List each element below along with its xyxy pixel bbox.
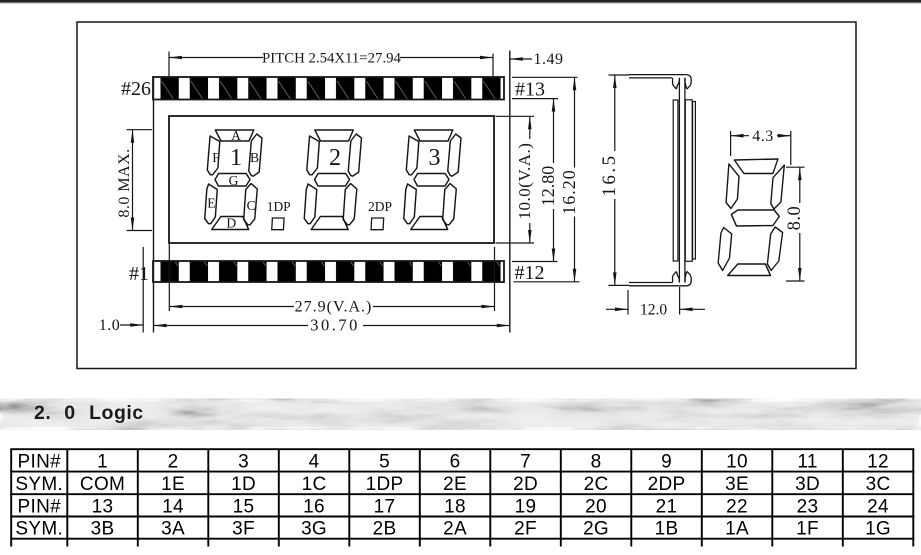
svg-text:16.20: 16.20 (559, 169, 579, 215)
svg-text:3B: 3B (91, 519, 115, 540)
svg-text:1C: 1C (302, 474, 327, 495)
svg-text:13: 13 (92, 496, 114, 517)
svg-text:4: 4 (309, 451, 320, 472)
svg-text:1D: 1D (231, 474, 256, 495)
svg-text:1E: 1E (161, 474, 185, 495)
svg-text:6: 6 (450, 451, 461, 472)
svg-text:A: A (231, 128, 241, 143)
svg-text:16: 16 (303, 496, 325, 517)
svg-text:3D: 3D (795, 474, 820, 495)
svg-text:3G: 3G (301, 519, 327, 540)
svg-text:3A: 3A (161, 519, 185, 540)
svg-text:G: G (229, 173, 239, 188)
svg-text:7: 7 (520, 451, 531, 472)
svg-text:1F: 1F (796, 519, 819, 540)
svg-text:19: 19 (515, 496, 537, 517)
svg-text:2D: 2D (513, 474, 538, 495)
svg-text:F: F (212, 150, 220, 165)
svg-text:8.0 MAX.: 8.0 MAX. (116, 148, 133, 217)
svg-text:3: 3 (238, 451, 249, 472)
svg-text:16.5: 16.5 (599, 153, 620, 196)
svg-text:C: C (247, 198, 256, 213)
svg-text:COM: COM (80, 474, 125, 495)
svg-text:E: E (207, 196, 215, 211)
svg-text:10.0(V.A.): 10.0(V.A.) (515, 143, 534, 220)
svg-text:2C: 2C (584, 474, 609, 495)
svg-text:1.49: 1.49 (534, 51, 564, 68)
svg-text:14: 14 (162, 496, 184, 517)
svg-text:#1: #1 (129, 263, 149, 285)
svg-text:1B: 1B (655, 519, 679, 540)
svg-text:12: 12 (867, 451, 889, 472)
svg-text:1DP: 1DP (366, 474, 404, 495)
svg-text:1.0: 1.0 (99, 317, 121, 334)
svg-text:3C: 3C (866, 474, 891, 495)
svg-text:D: D (226, 215, 236, 230)
svg-text:5: 5 (379, 451, 390, 472)
svg-text:12.0: 12.0 (640, 302, 667, 319)
svg-text:SYM.: SYM. (15, 474, 63, 495)
svg-text:11: 11 (797, 451, 817, 472)
svg-text:1G: 1G (865, 519, 891, 540)
svg-text:4.3: 4.3 (752, 128, 774, 145)
svg-text:2DP: 2DP (368, 199, 392, 214)
svg-text:22: 22 (726, 496, 748, 517)
svg-text:SYM.: SYM. (15, 519, 63, 540)
svg-text:27.9(V.A.): 27.9(V.A.) (295, 299, 373, 316)
svg-text:#13: #13 (515, 79, 545, 101)
svg-text:12.80: 12.80 (538, 166, 558, 207)
svg-text:2: 2 (168, 451, 179, 472)
svg-text:2A: 2A (443, 519, 467, 540)
svg-text:2DP: 2DP (648, 474, 686, 495)
svg-text:9: 9 (661, 451, 672, 472)
svg-text:PIN#: PIN# (18, 451, 62, 472)
svg-text:3: 3 (429, 145, 441, 171)
svg-text:1A: 1A (725, 519, 749, 540)
svg-text:2B: 2B (373, 519, 397, 540)
svg-text:2E: 2E (443, 474, 467, 495)
svg-text:8: 8 (591, 451, 602, 472)
svg-text:21: 21 (656, 496, 678, 517)
svg-text:17: 17 (374, 496, 396, 517)
svg-text:20: 20 (585, 496, 607, 517)
svg-text:3F: 3F (232, 519, 255, 540)
svg-text:2G: 2G (583, 519, 609, 540)
svg-text:23: 23 (797, 496, 819, 517)
svg-text:2: 2 (329, 145, 341, 171)
svg-text:PIN#: PIN# (18, 496, 62, 517)
svg-text:2F: 2F (514, 519, 537, 540)
svg-text:18: 18 (444, 496, 466, 517)
svg-text:1: 1 (230, 145, 242, 171)
svg-text:24: 24 (867, 496, 889, 517)
svg-text:1DP: 1DP (267, 199, 291, 214)
svg-text:10: 10 (726, 451, 748, 472)
svg-text:15: 15 (233, 496, 255, 517)
svg-text:8.0: 8.0 (785, 206, 805, 231)
svg-text:30.70: 30.70 (310, 316, 360, 335)
svg-text:2.0Logic: 2.0Logic (34, 402, 144, 424)
svg-text:3E: 3E (725, 474, 749, 495)
svg-text:PITCH 2.54X11=27.94: PITCH 2.54X11=27.94 (262, 51, 402, 67)
svg-text:B: B (250, 150, 259, 165)
svg-text:1: 1 (97, 451, 108, 472)
svg-text:#12: #12 (515, 262, 545, 284)
svg-text:#26: #26 (121, 78, 151, 100)
